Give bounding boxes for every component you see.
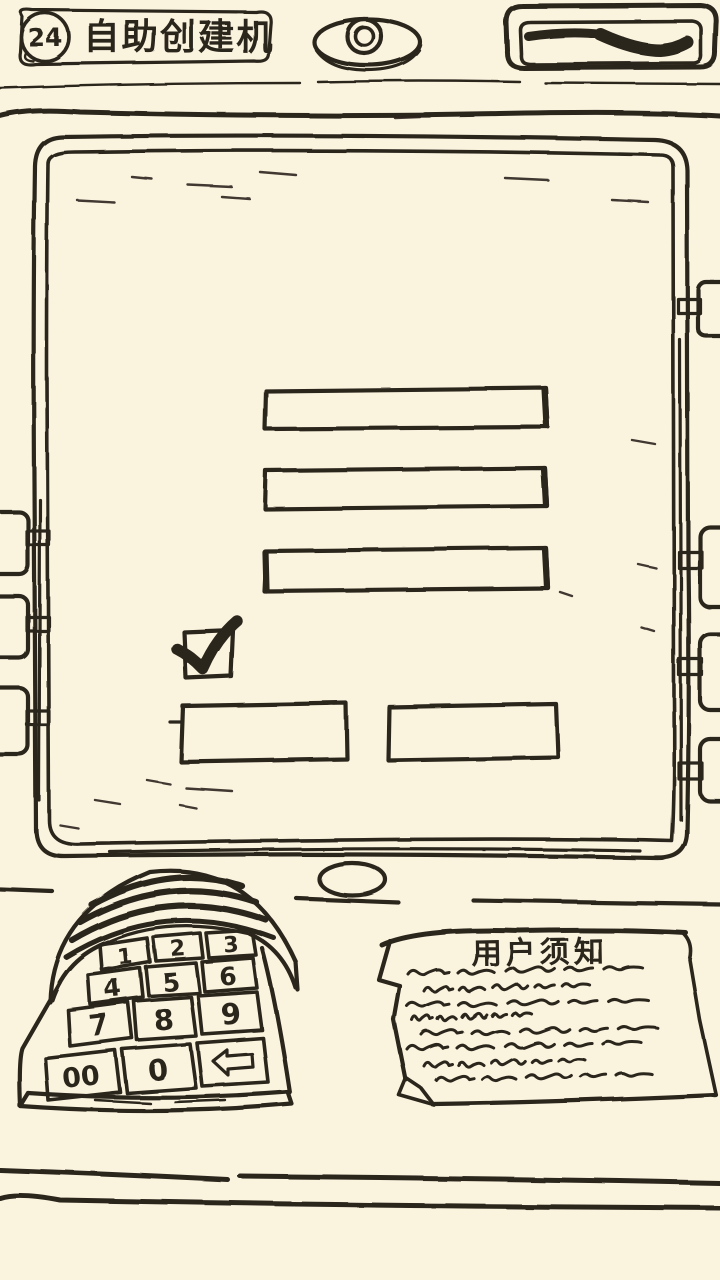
paper-background	[0, 0, 720, 1280]
key-6-label: 6	[218, 961, 237, 991]
game-screen: 24 自助创建机	[0, 0, 720, 1280]
key-2-label: 2	[170, 936, 187, 962]
page-title: 自助创建机	[84, 17, 274, 58]
key-00-label: 00	[61, 1060, 102, 1095]
key-1-label: 1	[116, 944, 134, 970]
key-8-label: 8	[153, 1002, 176, 1037]
key-3-label: 3	[223, 932, 240, 958]
key-4-label: 4	[103, 973, 123, 1004]
key-5-label: 5	[161, 967, 180, 997]
key-9-label: 9	[219, 996, 242, 1032]
level-number: 24	[28, 23, 63, 52]
level-plaque: 24 自助创建机	[20, 10, 274, 65]
key-7-label: 7	[87, 1007, 111, 1043]
key-0-label: 0	[146, 1052, 169, 1088]
